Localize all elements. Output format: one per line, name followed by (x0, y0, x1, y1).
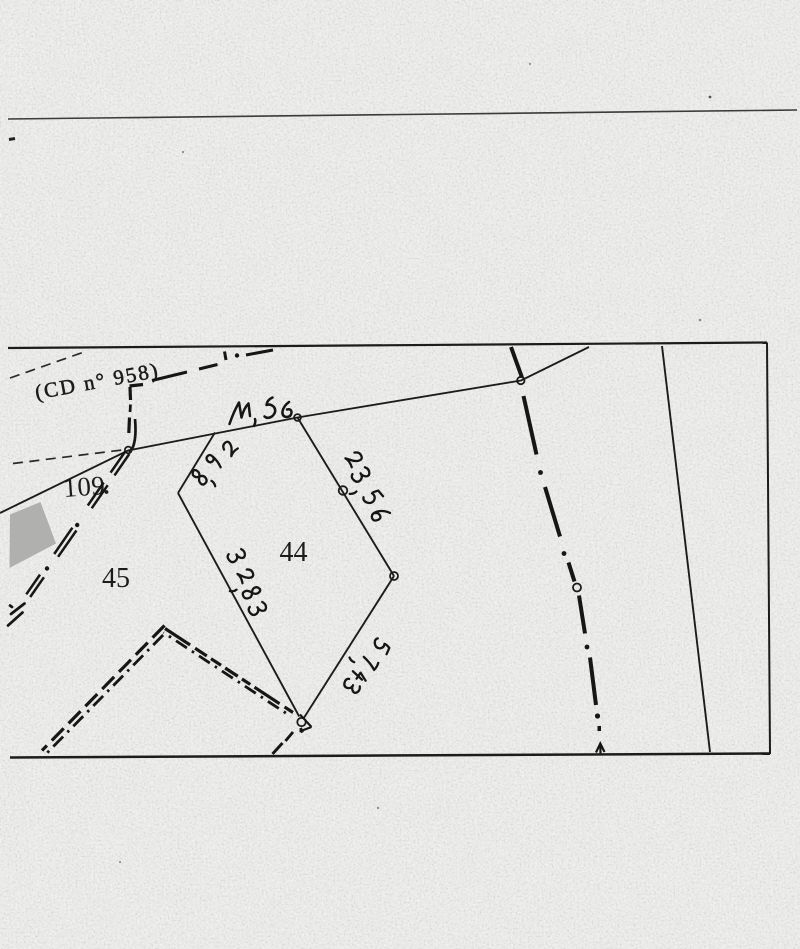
svg-text:45: 45 (102, 563, 130, 594)
svg-text:44: 44 (280, 537, 308, 568)
